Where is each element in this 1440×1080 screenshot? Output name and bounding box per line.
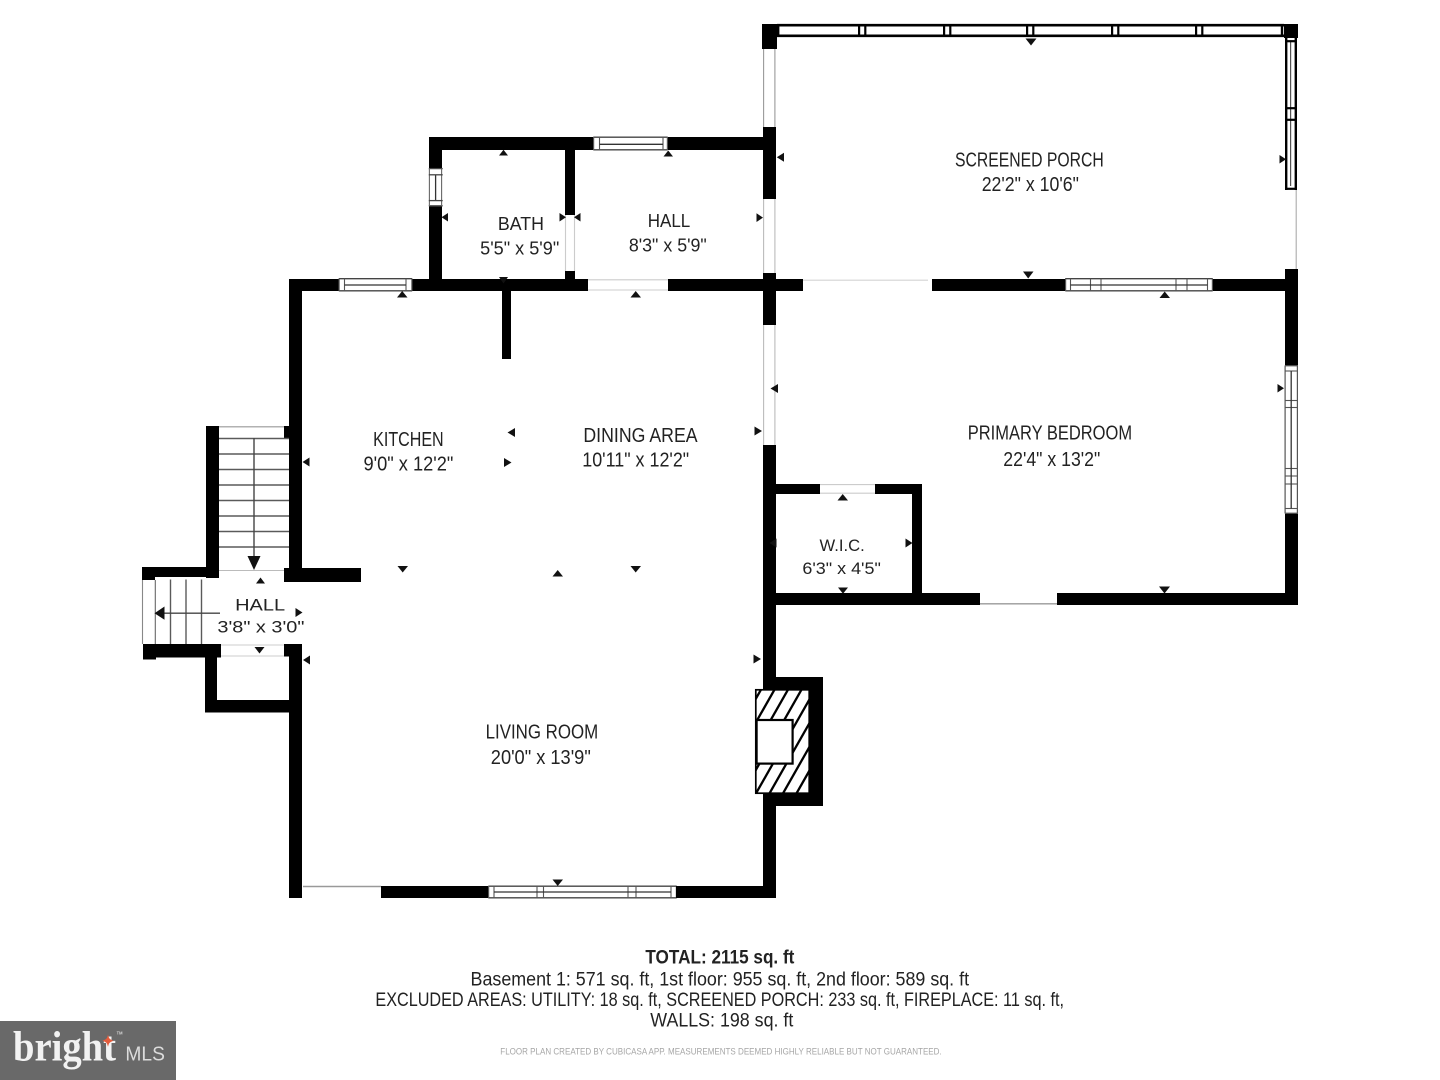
svg-text:FLOOR PLAN CREATED BY CUBICASA: FLOOR PLAN CREATED BY CUBICASA APP. MEAS… [500, 1046, 941, 1056]
svg-text:™: ™ [116, 1030, 123, 1039]
svg-text:Basement 1: 571 sq. ft, 1st fl: Basement 1: 571 sq. ft, 1st floor: 955 s… [471, 969, 970, 990]
svg-text:9'0" x 12'2": 9'0" x 12'2" [363, 453, 453, 475]
svg-text:6'3" x 4'5": 6'3" x 4'5" [802, 559, 881, 578]
svg-text:22'2" x 10'6": 22'2" x 10'6" [982, 174, 1079, 196]
svg-text:LIVING ROOM: LIVING ROOM [486, 721, 599, 743]
svg-text:TOTAL: 2115 sq. ft: TOTAL: 2115 sq. ft [645, 948, 795, 969]
svg-text:EXCLUDED AREAS: UTILITY: 18 sq: EXCLUDED AREAS: UTILITY: 18 sq. ft, SCRE… [375, 990, 1064, 1011]
svg-text:BATH: BATH [498, 214, 544, 234]
svg-text:DINING AREA: DINING AREA [583, 425, 698, 447]
svg-text:20'0" x 13'9": 20'0" x 13'9" [491, 747, 591, 769]
svg-text:HALL: HALL [648, 211, 691, 231]
svg-text:MLS: MLS [125, 1043, 164, 1066]
svg-text:5'5" x 5'9": 5'5" x 5'9" [480, 238, 559, 258]
svg-text:bright: bright [13, 1025, 116, 1071]
svg-text:3'8" x 3'0": 3'8" x 3'0" [217, 618, 304, 637]
svg-text:22'4" x 13'2": 22'4" x 13'2" [1003, 449, 1100, 471]
svg-text:8'3" x 5'9": 8'3" x 5'9" [629, 235, 707, 255]
svg-text:PRIMARY BEDROOM: PRIMARY BEDROOM [968, 423, 1132, 445]
svg-text:10'11" x 12'2": 10'11" x 12'2" [582, 450, 689, 472]
svg-text:KITCHEN: KITCHEN [373, 429, 444, 451]
svg-text:W.I.C.: W.I.C. [820, 536, 865, 555]
svg-text:SCREENED PORCH: SCREENED PORCH [955, 149, 1104, 171]
svg-text:WALLS: 198 sq. ft: WALLS: 198 sq. ft [650, 1011, 794, 1032]
svg-text:HALL: HALL [235, 596, 285, 615]
